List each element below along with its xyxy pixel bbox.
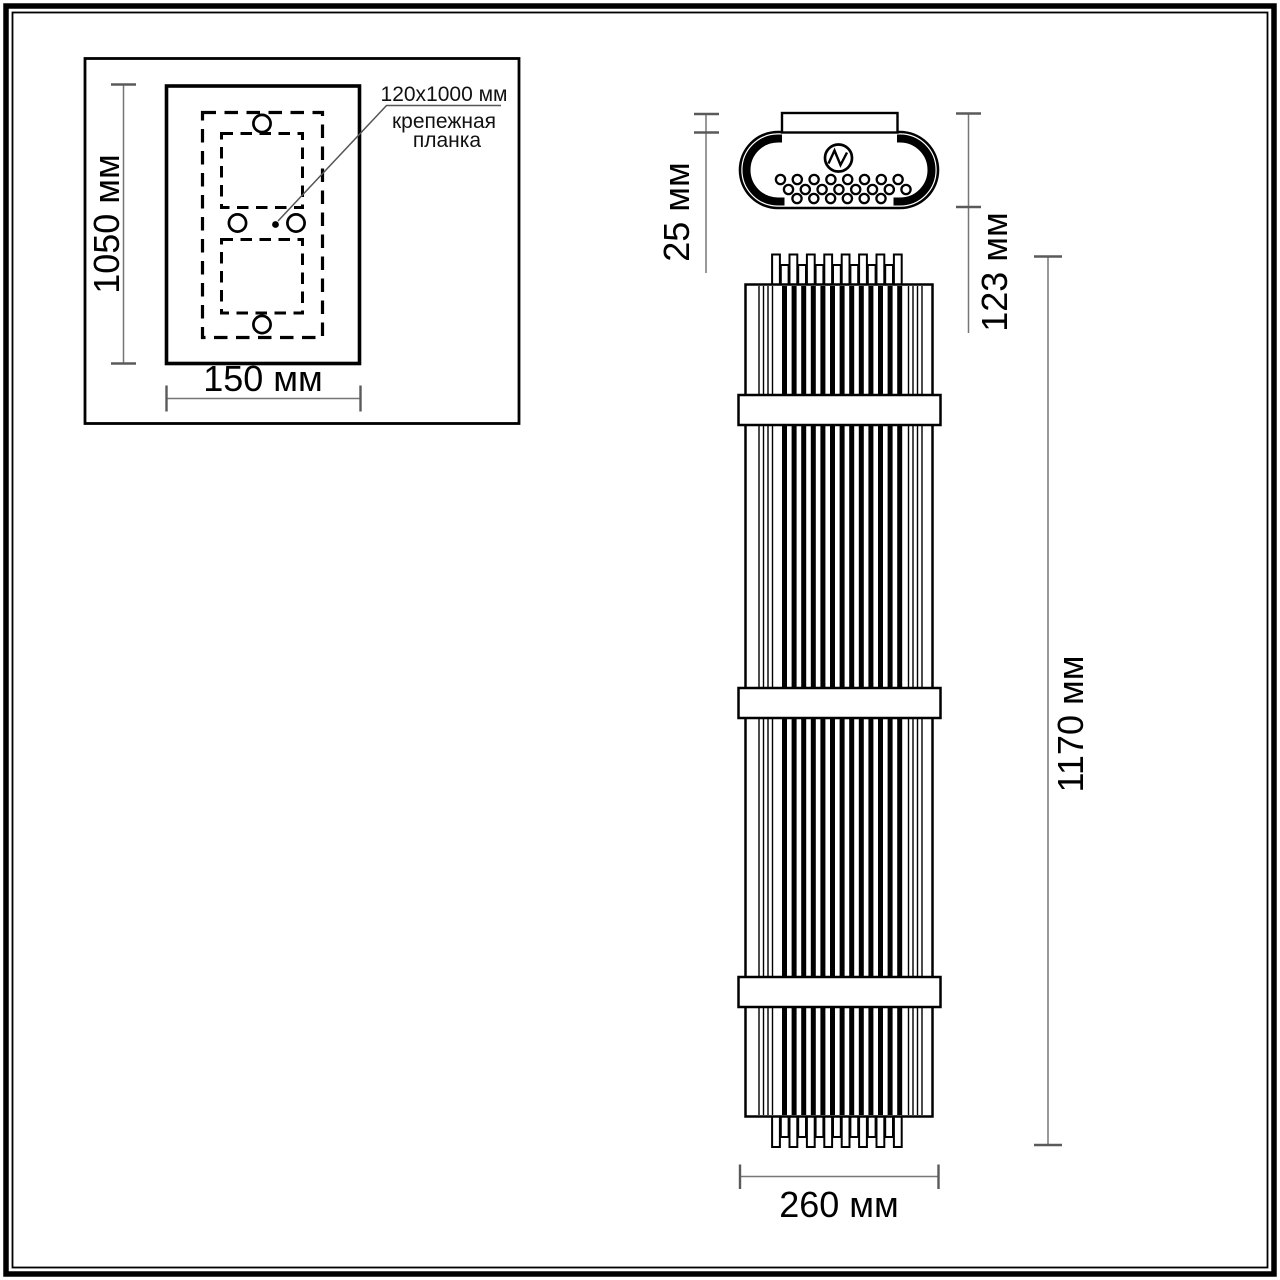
tube-tips-top [772, 255, 902, 287]
band-bottom [739, 977, 941, 1007]
depth-dimension: 123 мм [956, 113, 1015, 334]
mounting-bracket-top [782, 113, 898, 133]
front-height-dimension: 1170 мм [1034, 256, 1091, 1146]
callout-size-label: 120x1000 мм [381, 83, 508, 106]
plate-thickness-dimension: 25 мм [656, 113, 719, 273]
band-middle [739, 688, 941, 718]
inset-width-label: 150 мм [203, 358, 323, 399]
inset-height-label: 1050 мм [86, 154, 127, 294]
front-view: 1170 мм 260 мм [739, 255, 1092, 1226]
band-top [739, 395, 941, 425]
plate-thickness-label: 25 мм [656, 162, 697, 262]
front-width-label: 260 мм [779, 1184, 899, 1225]
tube-tips-bottom [772, 1115, 902, 1147]
callout-anchor-dot [272, 221, 279, 228]
callout-name-line2: планка [413, 129, 482, 152]
depth-label: 123 мм [974, 212, 1015, 332]
lamp-socket-icon [825, 145, 852, 172]
front-height-label: 1170 мм [1050, 656, 1091, 793]
mounting-plate-inset: 120x1000 мм крепежная планка 1050 мм 150… [85, 59, 519, 424]
front-width-dimension: 260 мм [740, 1165, 939, 1226]
technical-drawing-page: 120x1000 мм крепежная планка 1050 мм 150… [0, 0, 1280, 1280]
lamp-dimension-drawing: 120x1000 мм крепежная планка 1050 мм 150… [0, 0, 1280, 1280]
